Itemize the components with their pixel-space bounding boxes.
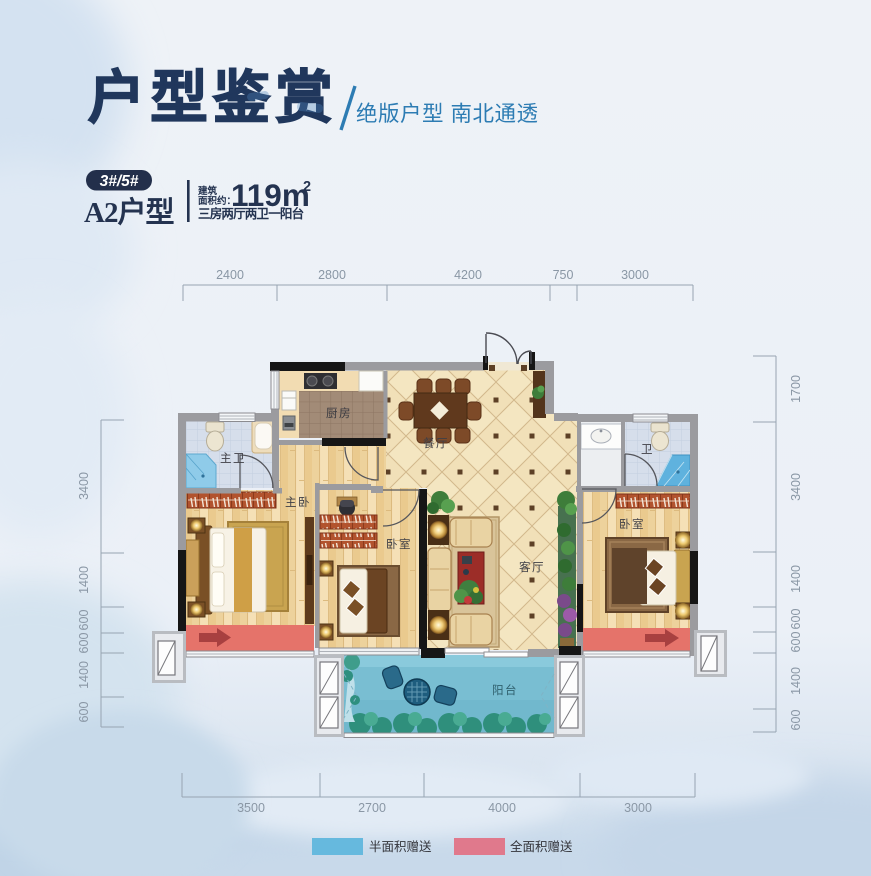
svg-text:2700: 2700 bbox=[358, 801, 386, 815]
svg-text:户型鉴赏: 户型鉴赏 bbox=[88, 67, 338, 130]
svg-text:3400: 3400 bbox=[789, 473, 803, 501]
svg-text:600: 600 bbox=[789, 632, 803, 653]
svg-text:A2户型: A2户型 bbox=[84, 195, 174, 229]
svg-text:1400: 1400 bbox=[789, 565, 803, 593]
svg-text:600: 600 bbox=[77, 702, 91, 723]
svg-text:卧室: 卧室 bbox=[386, 537, 412, 551]
svg-text:750: 750 bbox=[553, 268, 574, 282]
svg-text:600: 600 bbox=[77, 633, 91, 654]
svg-text:1700: 1700 bbox=[789, 375, 803, 403]
svg-text:1400: 1400 bbox=[789, 667, 803, 695]
svg-text:客厅: 客厅 bbox=[519, 560, 545, 574]
svg-text:3500: 3500 bbox=[237, 801, 265, 815]
svg-text:餐厅: 餐厅 bbox=[423, 436, 449, 450]
svg-text:1400: 1400 bbox=[77, 566, 91, 594]
svg-text:卫: 卫 bbox=[641, 444, 654, 456]
svg-text:3000: 3000 bbox=[624, 801, 652, 815]
svg-text:3000: 3000 bbox=[621, 268, 649, 282]
svg-text:卧室: 卧室 bbox=[619, 517, 645, 531]
svg-text:1400: 1400 bbox=[77, 661, 91, 689]
svg-text:3400: 3400 bbox=[77, 472, 91, 500]
svg-text:半面积赠送: 半面积赠送 bbox=[369, 839, 432, 854]
svg-text:绝版户型 南北通透: 绝版户型 南北通透 bbox=[356, 102, 538, 126]
svg-text:4000: 4000 bbox=[488, 801, 516, 815]
svg-text:全面积赠送: 全面积赠送 bbox=[510, 839, 573, 854]
svg-text:2800: 2800 bbox=[318, 268, 346, 282]
svg-text:厨房: 厨房 bbox=[326, 407, 352, 420]
svg-text:2: 2 bbox=[303, 179, 311, 195]
svg-text:600: 600 bbox=[789, 710, 803, 731]
svg-text:阳台: 阳台 bbox=[492, 683, 518, 697]
svg-text:三房两厅两卫一阳台: 三房两厅两卫一阳台 bbox=[198, 206, 304, 221]
svg-text:主卧: 主卧 bbox=[285, 496, 311, 509]
svg-text:3#/5#: 3#/5# bbox=[100, 173, 139, 190]
svg-text:4200: 4200 bbox=[454, 268, 482, 282]
svg-text:600: 600 bbox=[77, 610, 91, 631]
svg-text:主卫: 主卫 bbox=[220, 452, 246, 465]
svg-text:600: 600 bbox=[789, 609, 803, 630]
svg-text:2400: 2400 bbox=[216, 268, 244, 282]
